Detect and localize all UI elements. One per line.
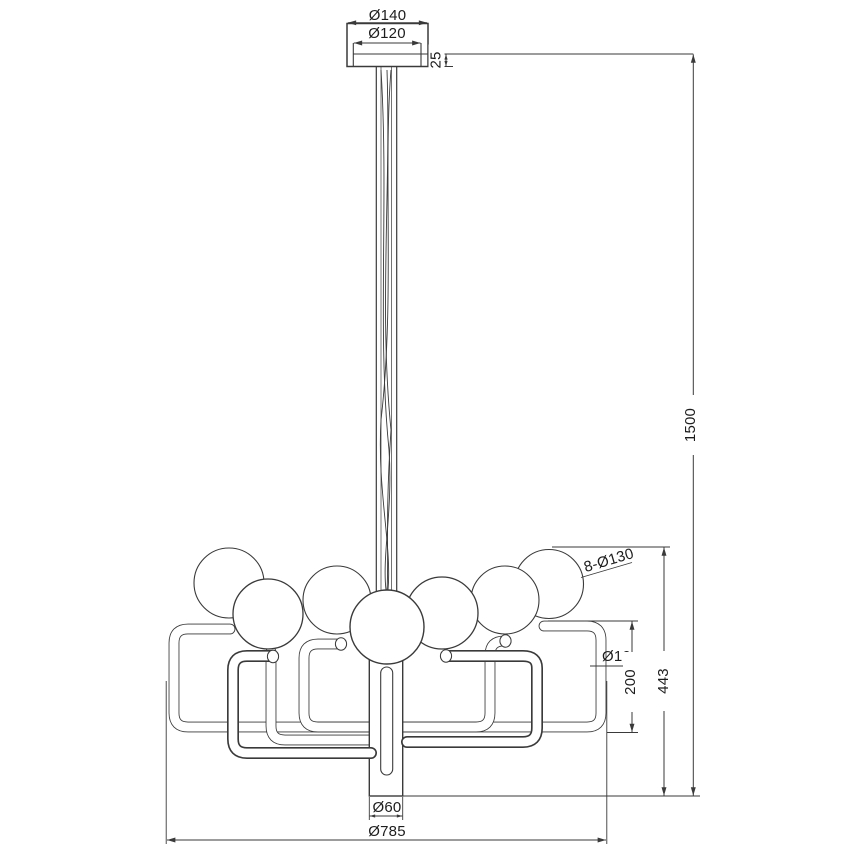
globe-center: [350, 590, 424, 664]
socket-cap: [440, 650, 451, 662]
center-column: [369, 655, 402, 796]
dim-label-canopy-height: 25: [429, 45, 445, 76]
chandelier-technical-drawing: Ø140 Ø120 25 1500 8-Ø130 Ø19 200 443 Ø60…: [0, 0, 868, 868]
drawing-geometry: [0, 0, 868, 868]
dim-label-suspension-length: 1500: [683, 395, 699, 455]
dim-label-center-stem-diameter: Ø60: [357, 800, 417, 816]
socket-cap: [335, 638, 346, 650]
socket-cap: [267, 650, 278, 662]
dim-label-canopy-inner-diameter: Ø120: [353, 26, 421, 42]
dimension-lines: [167, 23, 693, 840]
socket-cap: [500, 635, 511, 647]
dim-label-fixture-height: 443: [656, 651, 672, 711]
dim-label-arm-section-height: 200: [623, 652, 639, 712]
globe: [471, 566, 539, 634]
dim-label-canopy-outer-diameter: Ø140: [347, 8, 428, 24]
dim-label-overall-diameter: Ø785: [352, 824, 422, 840]
suspension-rod: [376, 67, 396, 593]
globe: [233, 579, 303, 649]
center-rod-slot: [381, 667, 393, 775]
